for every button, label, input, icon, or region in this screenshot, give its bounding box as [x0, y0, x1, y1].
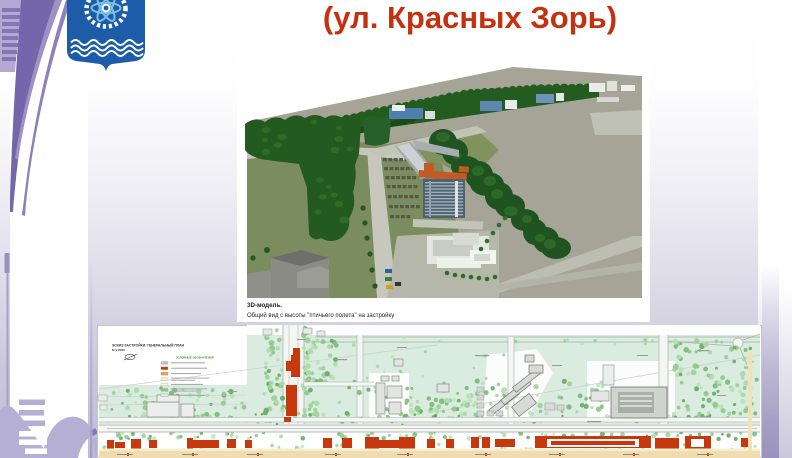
svg-text:УСЛОВНЫЕ ОБОЗНАЧЕНИЯ: УСЛОВНЫЕ ОБОЗНАЧЕНИЯ: [176, 356, 214, 360]
svg-text:ЭСКИЗ ЗАСТРОЙКИ. ГЕНЕРАЛЬНЫЙ П: ЭСКИЗ ЗАСТРОЙКИ. ГЕНЕРАЛЬНЫЙ ПЛАН: [112, 344, 185, 348]
svg-text:Общий вид с высоты "птичьего п: Общий вид с высоты "птичьего полета" на …: [247, 312, 394, 319]
svg-text:3D-модель.: 3D-модель.: [247, 302, 282, 309]
svg-text:М 1:2000: М 1:2000: [112, 348, 125, 352]
